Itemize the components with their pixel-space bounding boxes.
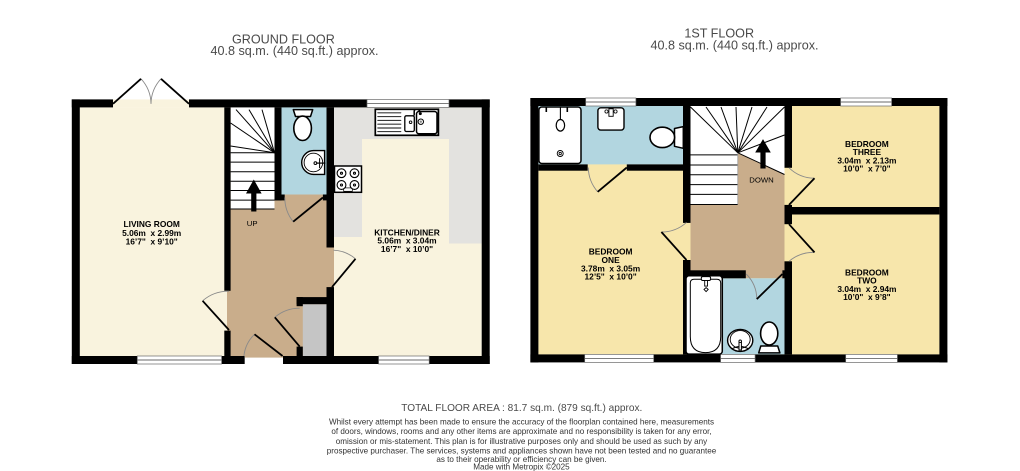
svg-text:12’5" x 10’0": 12’5" x 10’0" [585, 272, 637, 282]
svg-text:Whilst every attempt has been: Whilst every attempt has been made to en… [329, 418, 714, 427]
svg-text:10’0" x 7’0": 10’0" x 7’0" [843, 164, 891, 174]
svg-text:DOWN: DOWN [749, 175, 774, 184]
svg-text:16’7" x 10’0": 16’7" x 10’0" [381, 244, 433, 254]
svg-text:omission or mis-statement. Thi: omission or mis-statement. This plan is … [336, 437, 708, 446]
svg-text:10’0" x 9’8": 10’0" x 9’8" [843, 292, 891, 302]
svg-text:16’7" x 9’10": 16’7" x 9’10" [126, 237, 178, 247]
svg-text:Made with Metropix ©2025: Made with Metropix ©2025 [473, 463, 570, 471]
svg-text:40.8 sq.m. (440 sq.ft.) approx: 40.8 sq.m. (440 sq.ft.) approx. [211, 44, 379, 58]
svg-text:of doors, windows, rooms and a: of doors, windows, rooms and any other i… [331, 427, 711, 436]
svg-text:TOTAL FLOOR AREA : 81.7 sq.m.: TOTAL FLOOR AREA : 81.7 sq.m. (879 sq.ft… [401, 403, 642, 414]
svg-text:UP: UP [247, 219, 258, 228]
svg-text:40.8 sq.m. (440 sq.ft.) approx: 40.8 sq.m. (440 sq.ft.) approx. [651, 38, 819, 52]
svg-text:prospective purchaser. The ser: prospective purchaser. The services, sys… [327, 446, 717, 455]
